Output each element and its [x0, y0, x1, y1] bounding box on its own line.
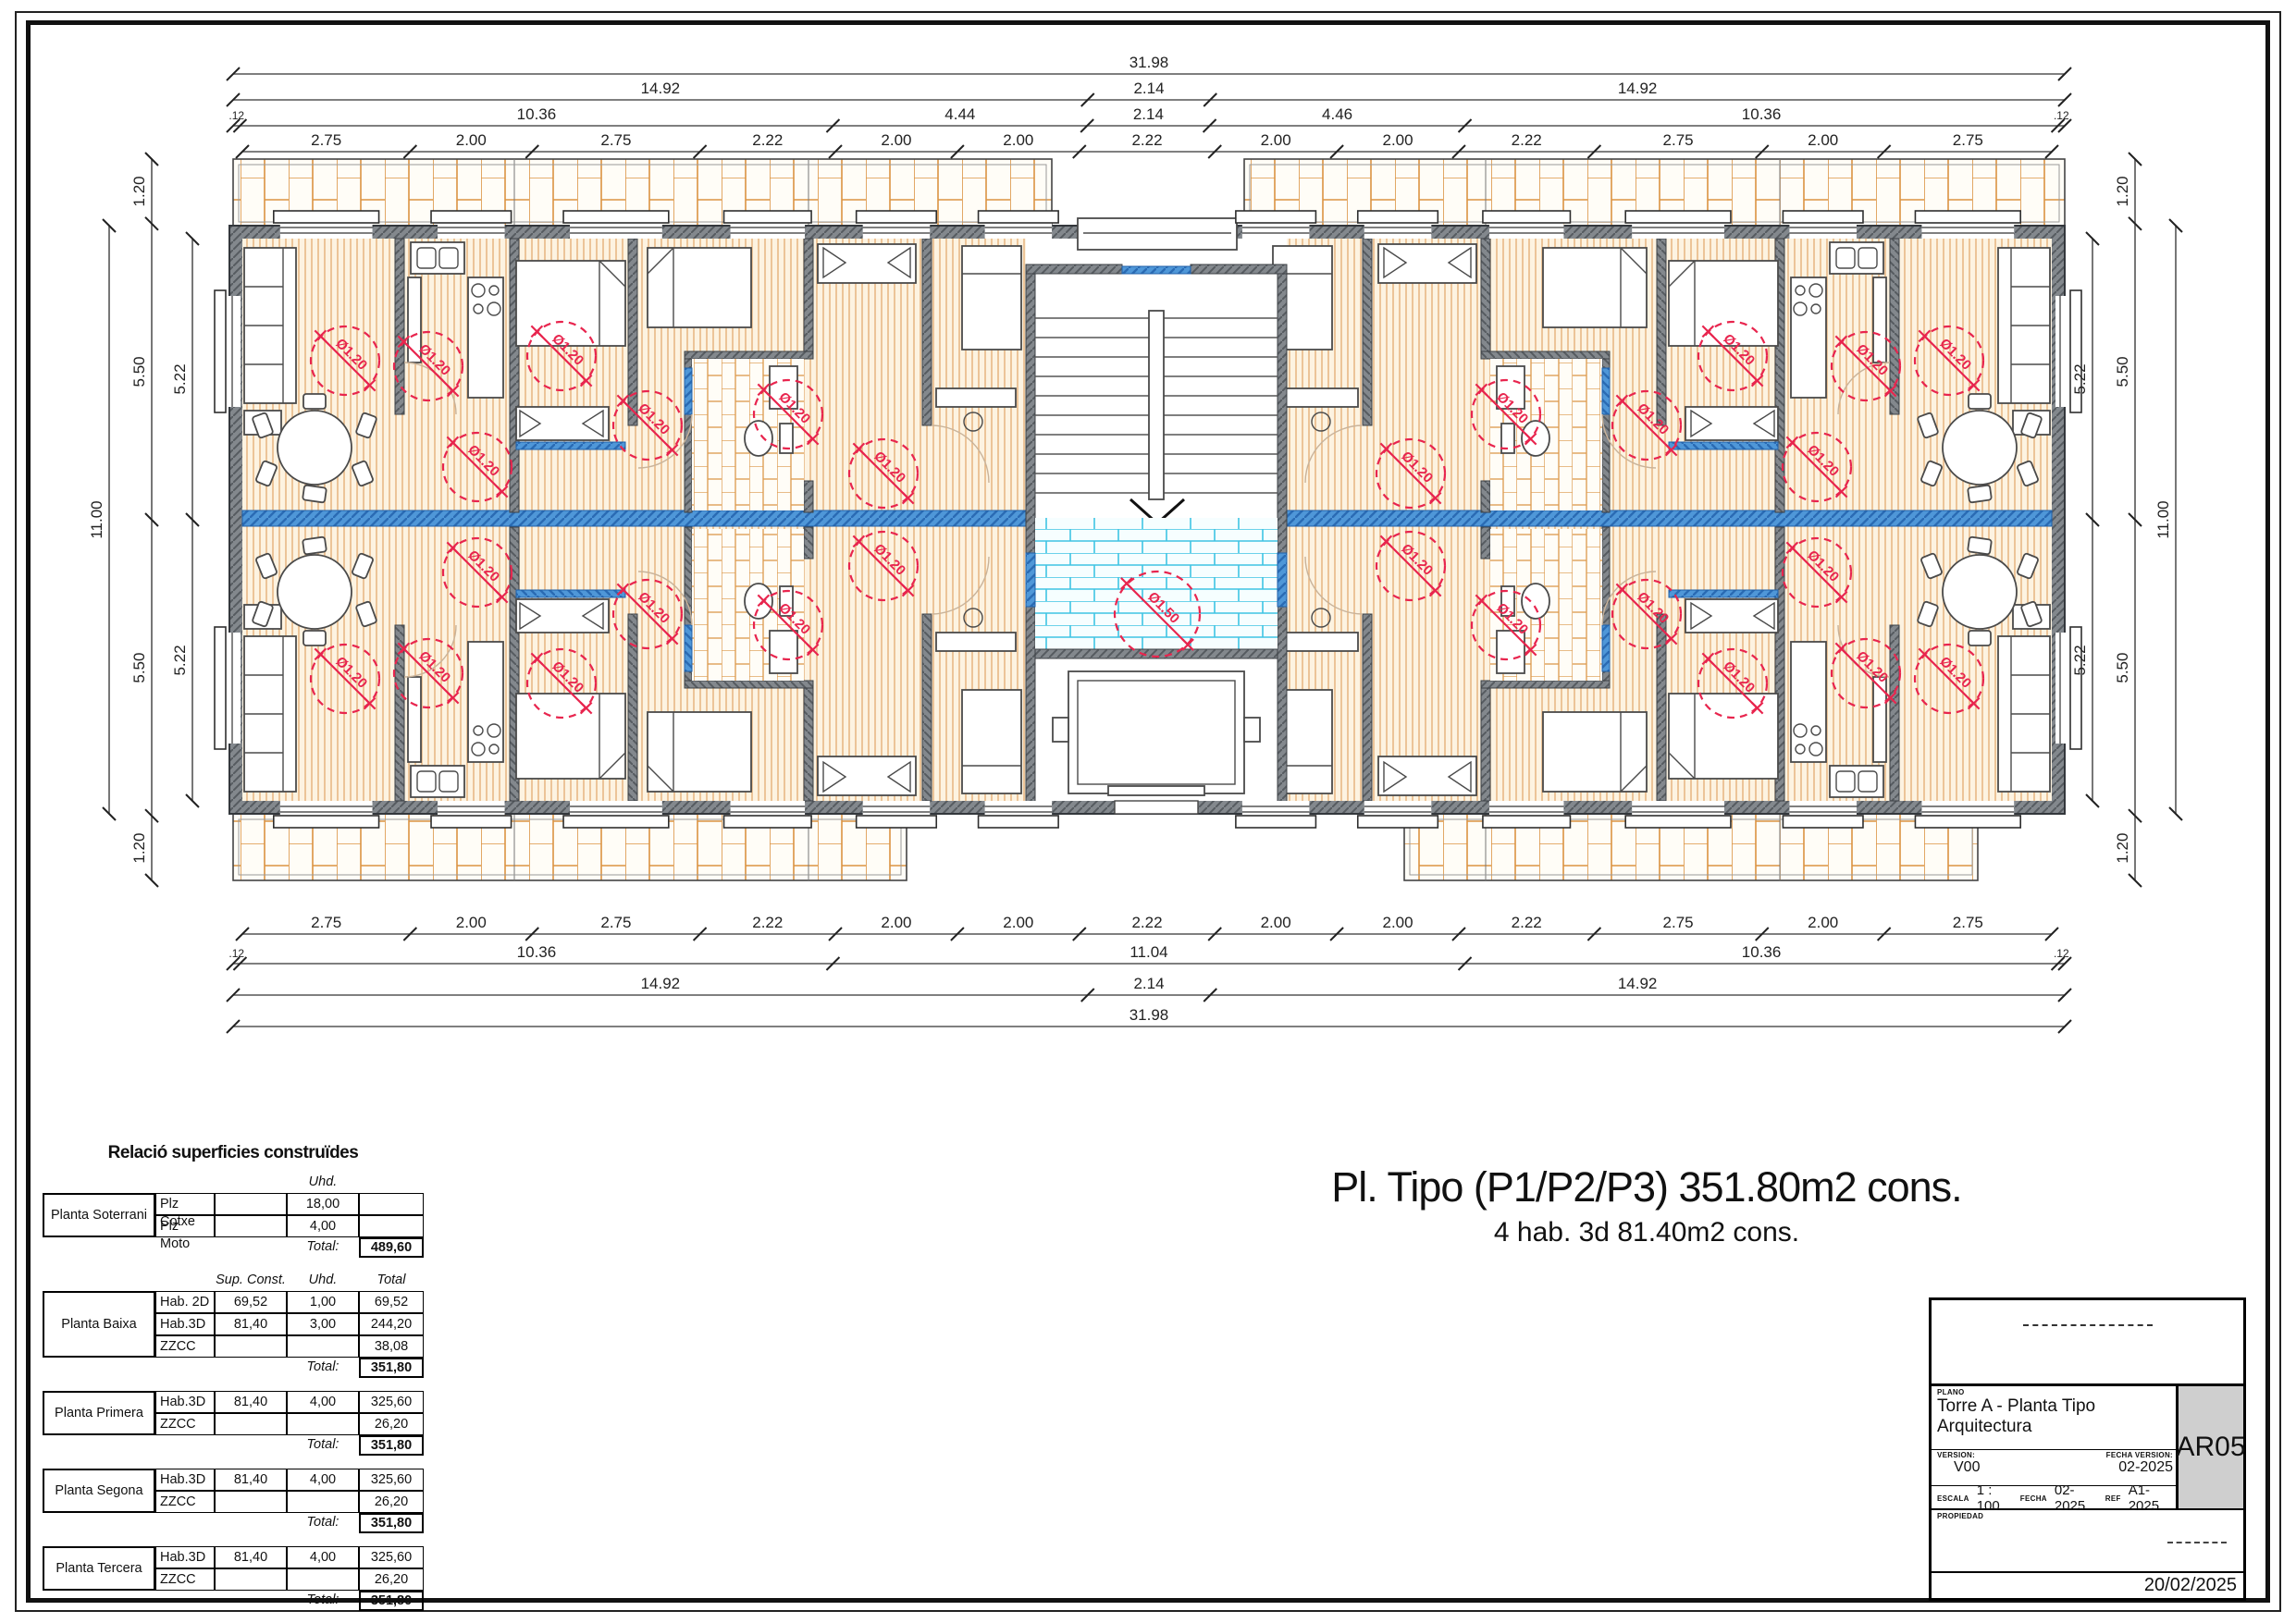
version-value: V00	[1937, 1459, 2050, 1476]
svg-text:11.00: 11.00	[88, 500, 105, 538]
table-header-cell: Sup. Const.	[215, 1271, 287, 1289]
version-label: VERSION:	[1937, 1451, 2050, 1459]
table-cell: 26,20	[359, 1491, 424, 1513]
table-cell	[287, 1568, 359, 1591]
table-cell: 4,00	[287, 1469, 359, 1491]
table-cell: Hab.3D	[155, 1391, 215, 1413]
table-cell	[215, 1568, 287, 1591]
table-cell: Plz Moto	[155, 1215, 215, 1237]
svg-text:14.92: 14.92	[1618, 975, 1658, 992]
svg-text:2.14: 2.14	[1133, 975, 1164, 992]
table-header-cell: Total	[359, 1271, 424, 1289]
svg-text:.12: .12	[228, 947, 244, 960]
table-header-cell	[359, 1173, 424, 1191]
lobby-tiles	[1035, 518, 1278, 649]
table-cell	[287, 1491, 359, 1513]
svg-text:2.00: 2.00	[1808, 914, 1838, 931]
table-cell	[215, 1335, 287, 1358]
svg-text:2.00: 2.00	[1382, 131, 1413, 149]
svg-text:5.50: 5.50	[2114, 653, 2131, 683]
total-label: Total:	[287, 1237, 359, 1258]
table-cell: ZZCC	[155, 1568, 215, 1591]
svg-text:1.20: 1.20	[130, 176, 148, 206]
svg-text:2.00: 2.00	[1382, 914, 1413, 931]
table-cell: 4,00	[287, 1215, 359, 1237]
plano-line2: Arquitectura	[1937, 1417, 2173, 1437]
svg-text:.12: .12	[2054, 109, 2069, 122]
escala-label: ESCALA	[1937, 1494, 1969, 1503]
areas-table: Relació superficies construïdes Uhd.Plan…	[43, 1143, 424, 1623]
svg-text:11.04: 11.04	[1129, 943, 1167, 961]
svg-text:14.92: 14.92	[1618, 80, 1658, 97]
table-cell: 26,20	[359, 1568, 424, 1591]
ref-value: A1-2025	[2129, 1482, 2173, 1514]
table-header-cell: Uhd.	[287, 1173, 359, 1191]
svg-text:2.00: 2.00	[1003, 131, 1033, 149]
table-cell: ZZCC	[155, 1491, 215, 1513]
table-header-cell	[215, 1173, 287, 1191]
svg-text:2.14: 2.14	[1133, 105, 1164, 123]
svg-text:2.75: 2.75	[311, 131, 341, 149]
svg-text:1.20: 1.20	[2114, 833, 2131, 864]
table-cell: 38,08	[359, 1335, 424, 1358]
table-cell: 325,60	[359, 1546, 424, 1568]
fecha-version-value: 02-2025	[2061, 1459, 2174, 1476]
planta-name: Planta Baixa	[43, 1291, 155, 1358]
planta-name: Planta Primera	[43, 1391, 155, 1435]
table-cell: Hab.3D	[155, 1469, 215, 1491]
svg-text:11.00: 11.00	[2154, 500, 2172, 538]
plano-line1: Torre A - Planta Tipo	[1937, 1396, 2173, 1417]
svg-text:1.20: 1.20	[2114, 176, 2131, 206]
table-cell	[215, 1193, 287, 1215]
total-label: Total:	[287, 1513, 359, 1533]
fecha-value: 02-2025	[2055, 1482, 2098, 1514]
svg-text:1.20: 1.20	[130, 833, 148, 864]
svg-text:2.00: 2.00	[1261, 131, 1291, 149]
table-header-cell: Uhd.	[287, 1271, 359, 1289]
svg-text:14.92: 14.92	[641, 975, 681, 992]
svg-text:2.00: 2.00	[1003, 914, 1033, 931]
table-cell: 69,52	[359, 1291, 424, 1313]
table-block: Planta PrimeraHab.3D81,404,00325,60ZZCC2…	[43, 1391, 424, 1435]
total-value: 351,80	[359, 1435, 424, 1456]
total-value: 351,80	[359, 1591, 424, 1611]
svg-text:2.75: 2.75	[1953, 131, 1983, 149]
total-value: 489,60	[359, 1237, 424, 1258]
table-cell: 4,00	[287, 1391, 359, 1413]
svg-text:2.00: 2.00	[881, 131, 911, 149]
areas-table-title: Relació superficies construïdes	[43, 1143, 424, 1163]
table-cell: 81,40	[215, 1313, 287, 1335]
table-cell: ZZCC	[155, 1413, 215, 1435]
total-value: 351,80	[359, 1513, 424, 1533]
svg-text:2.22: 2.22	[1512, 131, 1542, 149]
table-cell: Hab.3D	[155, 1546, 215, 1568]
svg-text:2.00: 2.00	[1808, 131, 1838, 149]
svg-text:2.75: 2.75	[600, 131, 631, 149]
table-cell: 69,52	[215, 1291, 287, 1313]
svg-text:14.92: 14.92	[641, 80, 681, 97]
svg-text:5.50: 5.50	[2114, 356, 2131, 387]
svg-text:10.36: 10.36	[517, 943, 557, 961]
svg-text:.12: .12	[228, 109, 244, 122]
title-block-top	[1932, 1300, 2243, 1386]
table-cell: 1,00	[287, 1291, 359, 1313]
svg-text:2.75: 2.75	[600, 914, 631, 931]
svg-text:2.14: 2.14	[1133, 80, 1164, 97]
title-block: PLANO Torre A - Planta Tipo Arquitectura…	[1929, 1297, 2246, 1601]
plan-title-line1: Pl. Tipo (P1/P2/P3) 351.80m2 cons.	[1267, 1163, 2026, 1211]
svg-text:2.22: 2.22	[1131, 131, 1162, 149]
table-cell: 325,60	[359, 1391, 424, 1413]
table-cell: ZZCC	[155, 1335, 215, 1358]
svg-text:5.22: 5.22	[2071, 645, 2089, 675]
table-cell	[287, 1335, 359, 1358]
table-cell: 81,40	[215, 1391, 287, 1413]
svg-text:2.00: 2.00	[1261, 914, 1291, 931]
svg-text:5.50: 5.50	[130, 356, 148, 387]
svg-text:2.75: 2.75	[1663, 914, 1694, 931]
svg-text:5.22: 5.22	[171, 645, 189, 675]
print-date: 20/02/2025	[2144, 1575, 2237, 1596]
total-value: 351,80	[359, 1358, 424, 1378]
svg-text:2.00: 2.00	[456, 914, 487, 931]
table-block: Planta BaixaHab. 2D69,521,0069,52Hab.3D8…	[43, 1291, 424, 1358]
table-cell	[287, 1413, 359, 1435]
fecha-label: FECHA	[2020, 1494, 2047, 1503]
table-cell: 3,00	[287, 1313, 359, 1335]
svg-text:2.75: 2.75	[1663, 131, 1694, 149]
svg-text:10.36: 10.36	[517, 105, 557, 123]
svg-text:31.98: 31.98	[1129, 1006, 1169, 1024]
drawing-sheet: { "sheet": { "date": "20/02/2025" }, "ma…	[0, 0, 2296, 1623]
total-label: Total:	[287, 1591, 359, 1611]
svg-text:10.36: 10.36	[1742, 943, 1782, 961]
svg-text:2.00: 2.00	[456, 131, 487, 149]
table-cell: 4,00	[287, 1546, 359, 1568]
svg-text:2.75: 2.75	[1953, 914, 1983, 931]
table-cell: 244,20	[359, 1313, 424, 1335]
total-label: Total:	[287, 1435, 359, 1456]
planta-name: Planta Soterrani	[43, 1193, 155, 1237]
fecha-version-label: FECHA VERSION:	[2061, 1451, 2174, 1459]
planta-name: Planta Segona	[43, 1469, 155, 1513]
plano-label: PLANO	[1937, 1388, 2173, 1396]
table-cell: 325,60	[359, 1469, 424, 1491]
svg-text:2.22: 2.22	[1512, 914, 1542, 931]
svg-text:2.22: 2.22	[752, 131, 783, 149]
escala-value: 1 : 100	[1977, 1482, 2013, 1514]
svg-text:10.36: 10.36	[1742, 105, 1782, 123]
table-block: Planta SoterraniPlz Cotxe18,00Plz Moto4,…	[43, 1193, 424, 1237]
table-cell: Plz Cotxe	[155, 1193, 215, 1215]
table-cell	[215, 1413, 287, 1435]
svg-text:4.44: 4.44	[944, 105, 975, 123]
table-cell	[215, 1215, 287, 1237]
svg-text:31.98: 31.98	[1129, 54, 1169, 71]
dashed-placeholder	[2023, 1324, 2153, 1326]
table-cell: 81,40	[215, 1546, 287, 1568]
svg-text:4.46: 4.46	[1322, 105, 1352, 123]
table-block: Planta SegonaHab.3D81,404,00325,60ZZCC26…	[43, 1469, 424, 1513]
table-cell: 81,40	[215, 1469, 287, 1491]
plan-title-line2: 4 hab. 3d 81.40m2 cons.	[1267, 1217, 2026, 1248]
svg-text:2.75: 2.75	[311, 914, 341, 931]
dashed-placeholder-small	[2167, 1542, 2227, 1543]
planta-name: Planta Tercera	[43, 1546, 155, 1591]
propiedad-label: PROPIEDAD	[1937, 1512, 2238, 1520]
svg-text:5.22: 5.22	[2071, 363, 2089, 394]
svg-text:2.00: 2.00	[881, 914, 911, 931]
table-cell: Hab.3D	[155, 1313, 215, 1335]
table-cell: Hab. 2D	[155, 1291, 215, 1313]
table-cell	[215, 1491, 287, 1513]
plan-main-title: Pl. Tipo (P1/P2/P3) 351.80m2 cons. 4 hab…	[1267, 1163, 2026, 1248]
table-cell	[359, 1215, 424, 1237]
ref-label: REF	[2105, 1494, 2121, 1503]
table-cell	[359, 1193, 424, 1215]
svg-text:5.22: 5.22	[171, 363, 189, 394]
table-block: Planta TerceraHab.3D81,404,00325,60ZZCC2…	[43, 1546, 424, 1591]
svg-text:2.22: 2.22	[1131, 914, 1162, 931]
table-cell: 18,00	[287, 1193, 359, 1215]
elevator	[1035, 649, 1278, 795]
svg-text:2.22: 2.22	[752, 914, 783, 931]
stair-core	[1026, 218, 1287, 814]
table-cell: 26,20	[359, 1413, 424, 1435]
total-label: Total:	[287, 1358, 359, 1378]
svg-text:.12: .12	[2054, 947, 2069, 960]
svg-text:5.50: 5.50	[130, 653, 148, 683]
sheet-code: AR05	[2176, 1386, 2243, 1508]
